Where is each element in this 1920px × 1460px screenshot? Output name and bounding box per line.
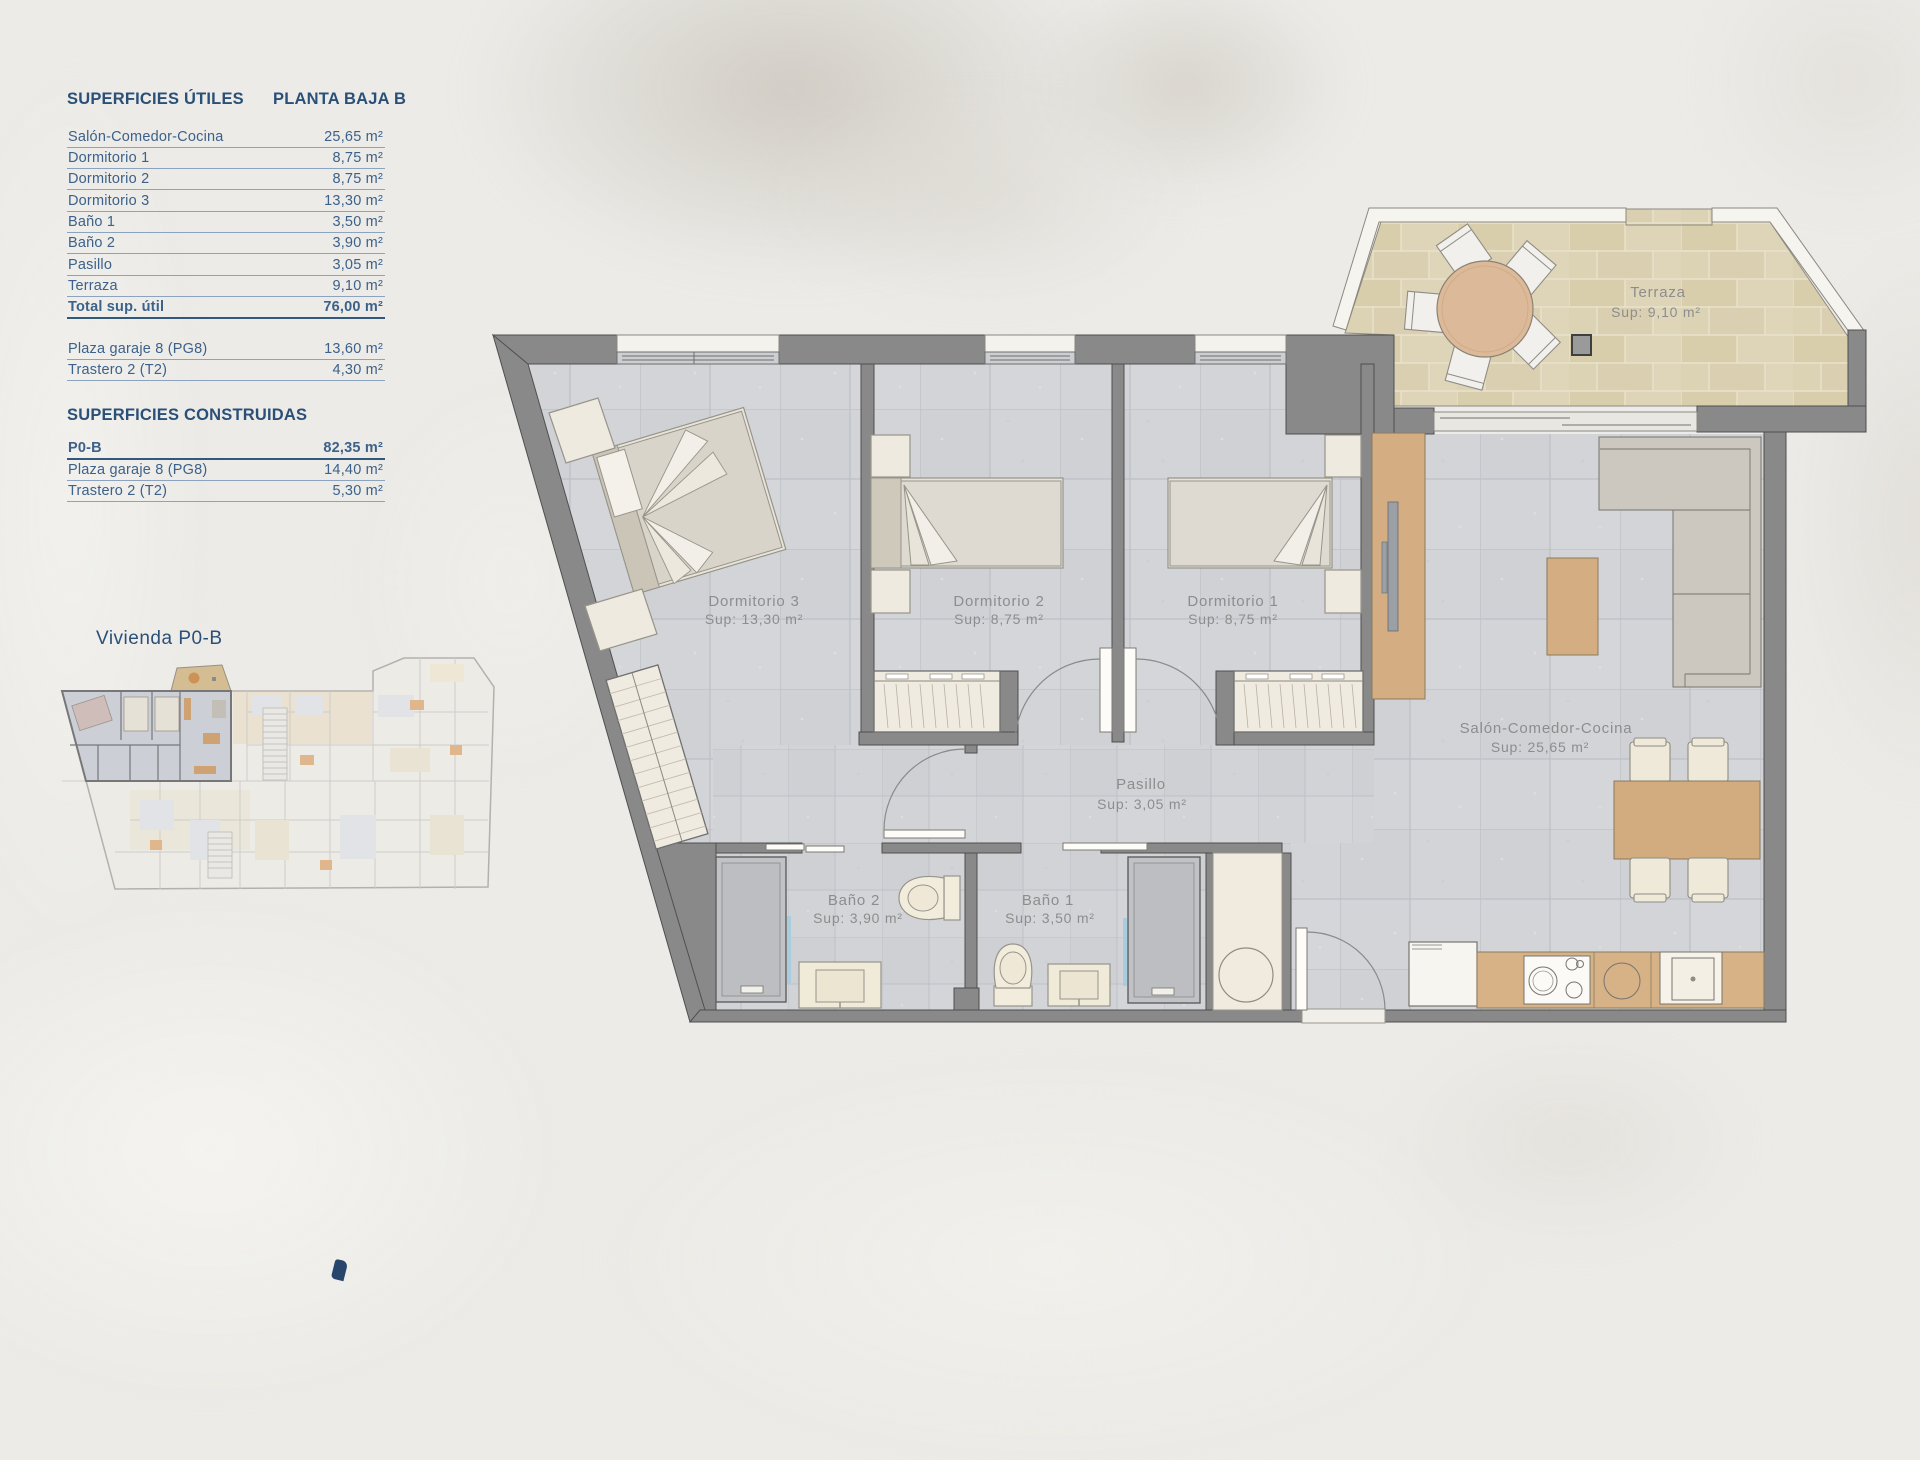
svg-text:Sup: 8,75 m²: Sup: 8,75 m²: [954, 611, 1044, 627]
svg-text:Baño 2: Baño 2: [828, 892, 880, 909]
svg-text:Sup: 3,50 m²: Sup: 3,50 m²: [1005, 910, 1095, 926]
svg-text:Sup: 13,30 m²: Sup: 13,30 m²: [705, 611, 803, 627]
svg-text:Sup: 25,65 m²: Sup: 25,65 m²: [1491, 739, 1589, 755]
svg-text:Baño 1: Baño 1: [1022, 892, 1074, 909]
svg-text:Sup: 3,05 m²: Sup: 3,05 m²: [1097, 796, 1187, 812]
svg-text:Sup: 8,75 m²: Sup: 8,75 m²: [1188, 611, 1278, 627]
svg-text:Dormitorio 2: Dormitorio 2: [953, 593, 1044, 610]
svg-text:Salón-Comedor-Cocina: Salón-Comedor-Cocina: [1460, 720, 1633, 737]
svg-text:Dormitorio 3: Dormitorio 3: [708, 593, 799, 610]
svg-text:Dormitorio 1: Dormitorio 1: [1187, 593, 1278, 610]
svg-text:Sup: 3,90 m²: Sup: 3,90 m²: [813, 910, 903, 926]
svg-text:Sup: 9,10 m²: Sup: 9,10 m²: [1611, 304, 1701, 320]
svg-text:Terraza: Terraza: [1630, 284, 1686, 301]
svg-text:Pasillo: Pasillo: [1116, 776, 1166, 793]
